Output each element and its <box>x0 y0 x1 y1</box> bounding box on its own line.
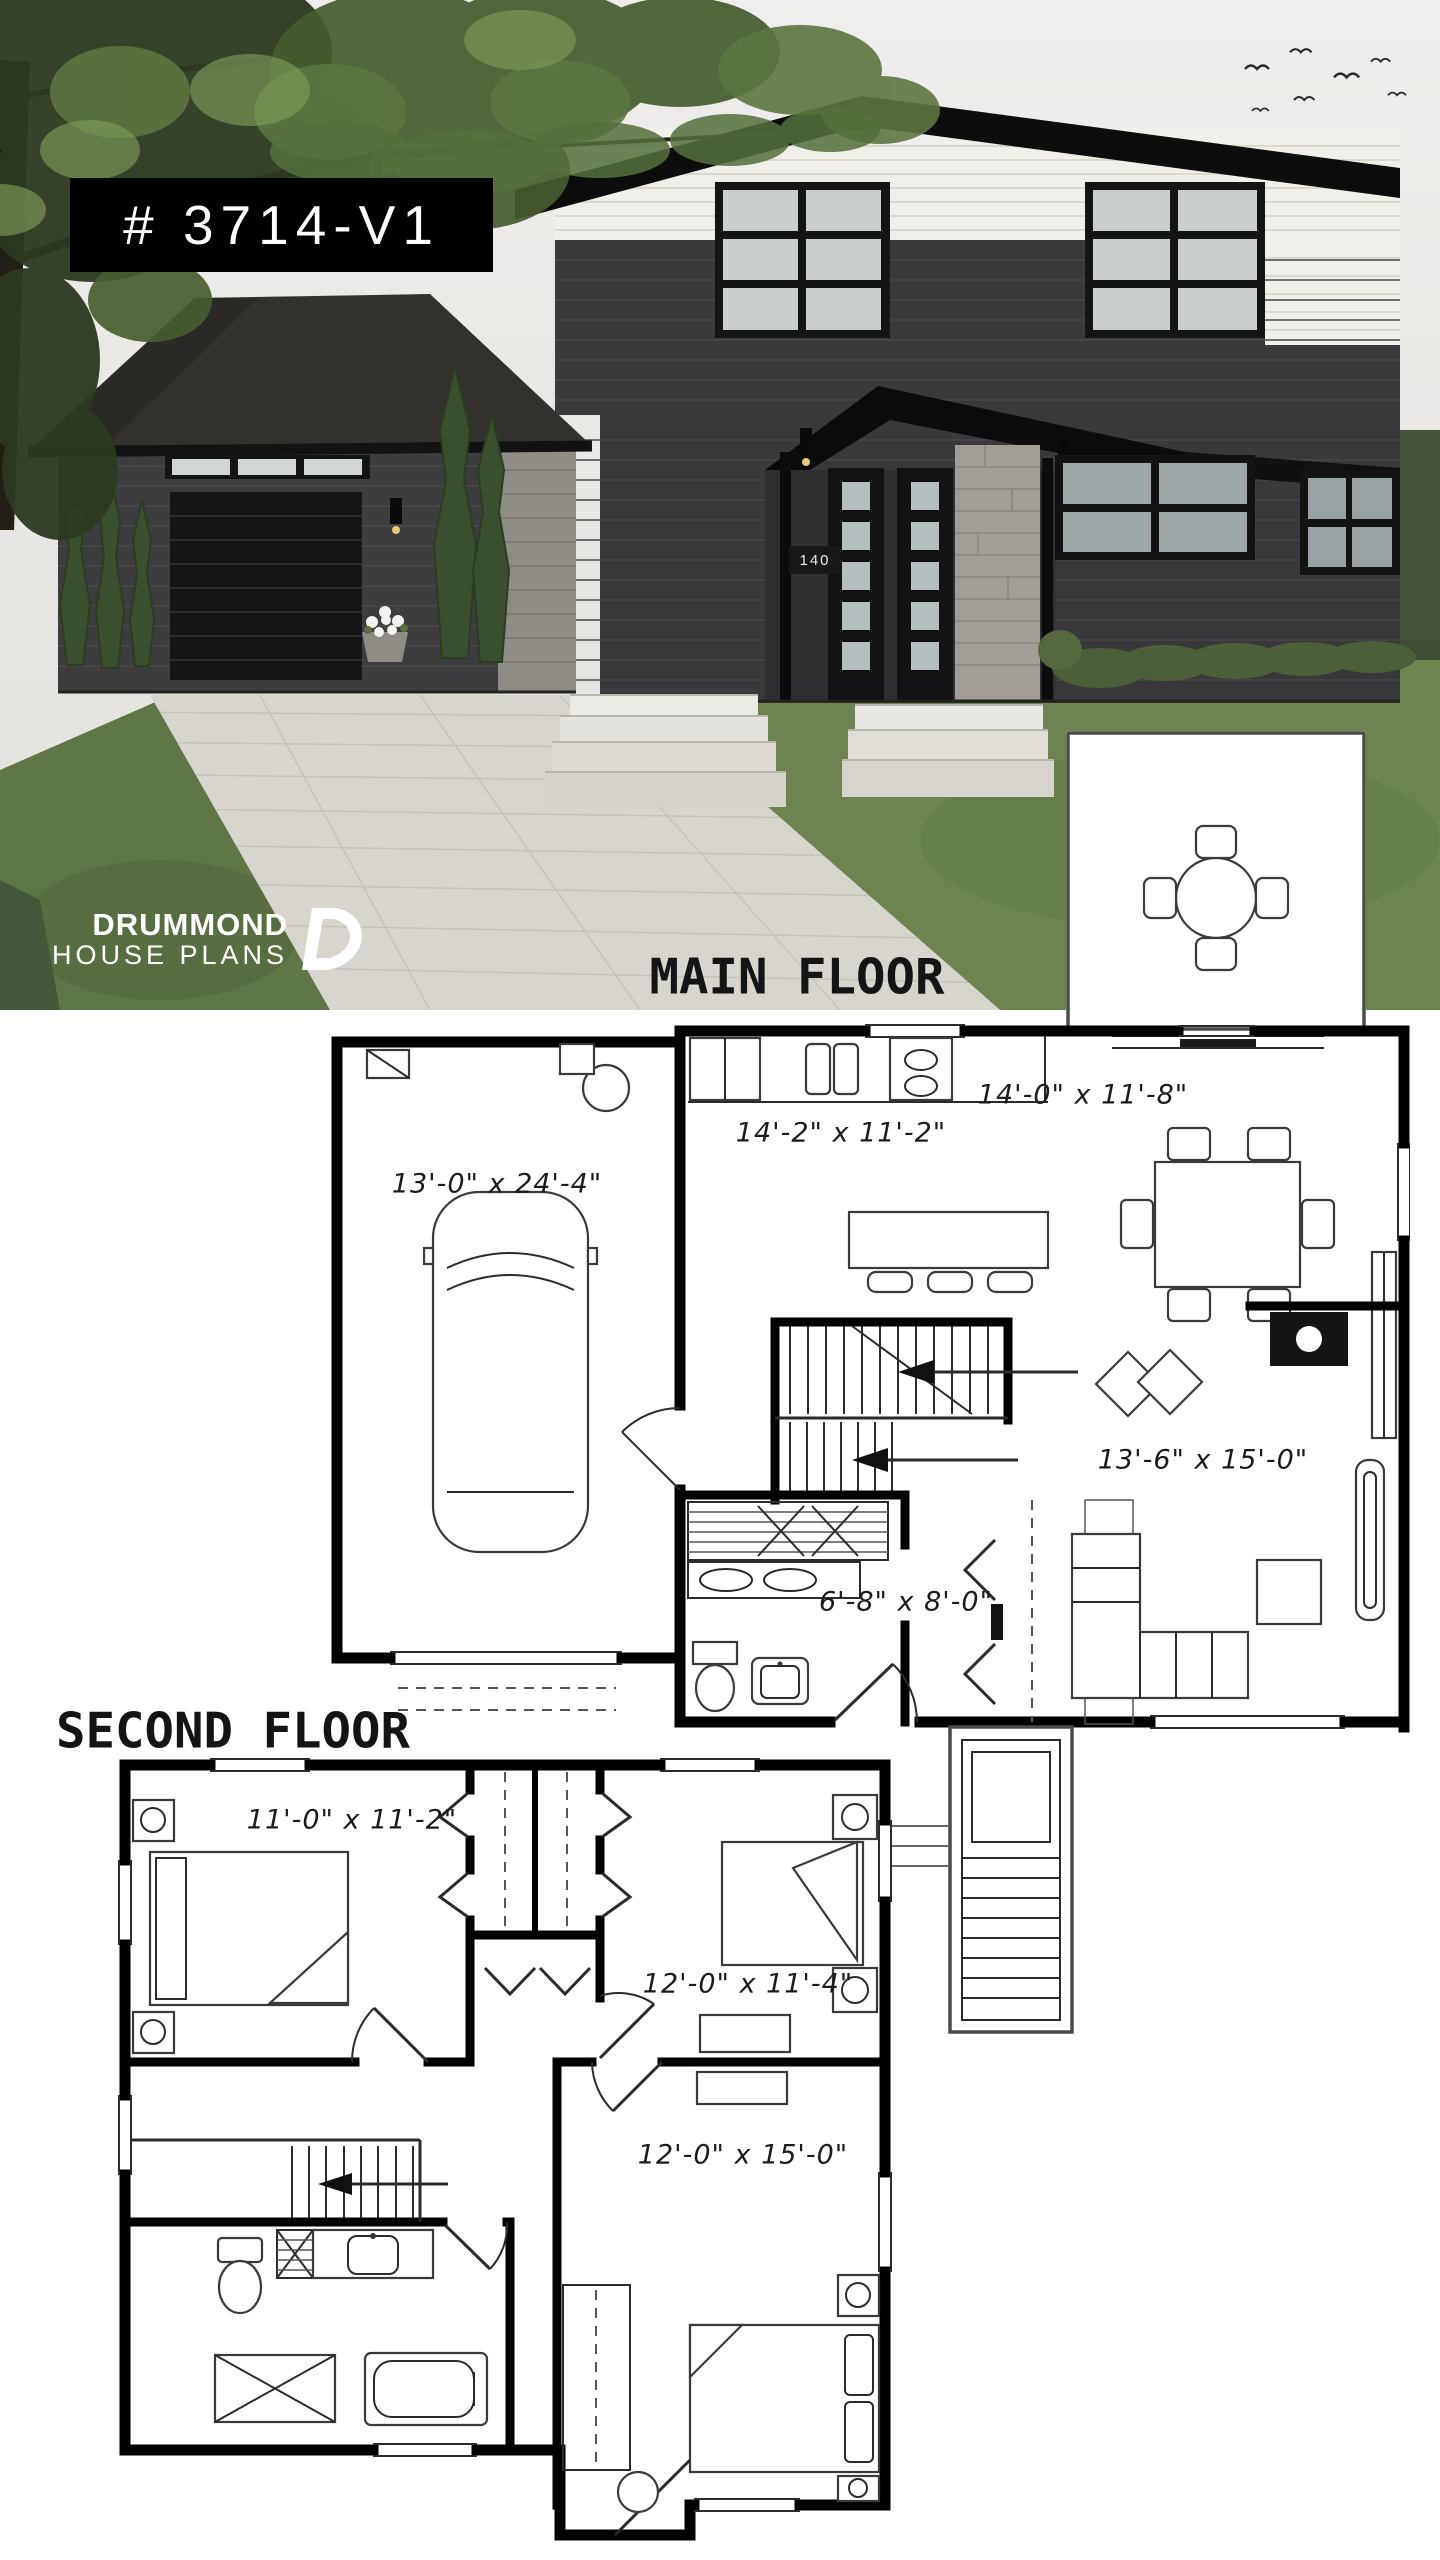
bedroom2-dimensions: 12'-0" x 11'-4" <box>643 1969 853 2000</box>
stone-pillar <box>955 445 1040 702</box>
bathtub <box>365 2353 487 2425</box>
garage-transom-window <box>165 455 370 479</box>
garage-dimensions: 13'-0" x 24'-4" <box>392 1169 602 1200</box>
fridge <box>690 1038 760 1100</box>
living-dimensions: 13'-6" x 15'-0" <box>1098 1445 1308 1476</box>
house <box>515 96 1400 703</box>
buffet <box>1372 1252 1396 1438</box>
house-plan-pin: { "photo": { "plan_badge": "# 3714-V1", … <box>0 0 1440 2560</box>
logo-line2: HOUSE PLANS <box>52 941 288 969</box>
dining-dimensions: 14'-0" x 11'-8" <box>978 1080 1188 1111</box>
wall-heater <box>1356 1460 1384 1620</box>
van <box>424 1192 597 1552</box>
plan-number-badge: # 3714-V1 <box>70 178 493 272</box>
main-floor-title: MAIN FLOOR <box>649 949 944 1006</box>
entry-post-left <box>780 452 791 702</box>
kitchen-dimensions: 14'-2" x 11'-2" <box>736 1118 946 1149</box>
coffee-table <box>1257 1560 1321 1624</box>
vanity-sink <box>313 2230 433 2278</box>
drummond-logo: DRUMMOND HOUSE PLANS <box>52 908 362 970</box>
cooktop <box>890 1038 952 1100</box>
entry-dimensions: 6'-8" x 8'-0" <box>819 1587 993 1618</box>
upper-window-right <box>1085 182 1265 338</box>
house-number-text: 140 <box>799 552 830 569</box>
toilet <box>693 1642 737 1711</box>
powder-sink <box>752 1658 808 1704</box>
garage-door <box>170 492 362 680</box>
shower <box>215 2355 335 2422</box>
upper-window-left <box>715 182 890 338</box>
logo-line1: DRUMMOND <box>92 909 288 942</box>
toilet <box>218 2238 262 2313</box>
plan-number-text: # 3714-V1 <box>123 193 440 257</box>
lower-window-right <box>1055 455 1400 575</box>
second-floor-title: SECOND FLOOR <box>56 1703 410 1760</box>
second-floor-plan <box>100 1750 1110 2550</box>
master-bedroom-dimensions: 12'-0" x 15'-0" <box>638 2140 848 2171</box>
drummond-logo-text: DRUMMOND HOUSE PLANS <box>52 909 288 970</box>
fireplace <box>1270 1312 1348 1366</box>
house-number-plate: 140 <box>789 546 841 574</box>
kitchen-island <box>849 1212 1048 1292</box>
bedroom1-dimensions: 11'-0" x 11'-2" <box>247 1805 457 1836</box>
garage-bench <box>367 1050 409 1078</box>
deck-bumpout <box>1068 733 1364 1048</box>
